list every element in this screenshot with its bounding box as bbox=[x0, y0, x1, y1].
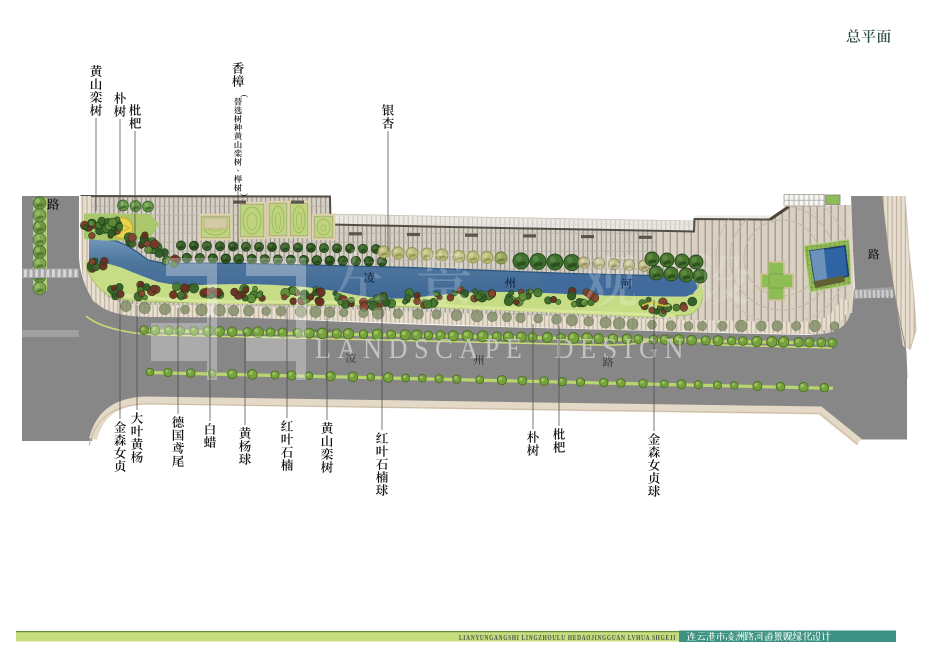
svg-text:LIANYUNGANGSHI LINGZHOULU HEDA: LIANYUNGANGSHI LINGZHOULU HEDAOJINGGUAN … bbox=[459, 633, 676, 642]
svg-text:LANDSCAPE DESIGN: LANDSCAPE DESIGN bbox=[315, 334, 690, 365]
